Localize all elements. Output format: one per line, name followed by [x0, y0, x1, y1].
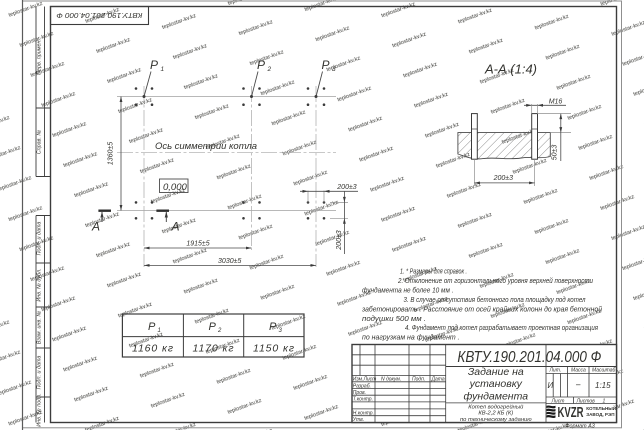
svg-text:Р: Р [269, 321, 277, 333]
svg-text:3. В случае отсутствия бетонн: 3. В случае отсутствия бетонного пола пл… [404, 296, 586, 304]
svg-text:Перв. примен.: Перв. примен. [37, 39, 43, 75]
svg-text:Подп. и дата: Подп. и дата [37, 356, 43, 390]
svg-text:КОТЕЛЬНЫЙ: КОТЕЛЬНЫЙ [586, 404, 616, 411]
svg-text:1360±5: 1360±5 [108, 142, 115, 165]
svg-text:М16: М16 [549, 98, 563, 105]
svg-text:1915±5: 1915±5 [186, 241, 209, 248]
svg-text:200±3: 200±3 [336, 184, 357, 191]
svg-text:Задание на: Задание на [468, 366, 524, 378]
svg-text:по техническому заданию: по техническому заданию [460, 417, 532, 423]
svg-text:Утв.: Утв. [353, 417, 364, 423]
svg-text:КВ-2,2 КБ (К): КВ-2,2 КБ (К) [478, 411, 513, 417]
svg-text:Р: Р [209, 321, 217, 333]
svg-text:1:15: 1:15 [595, 381, 611, 390]
svg-text:И: И [548, 381, 554, 390]
svg-text:1150 кг: 1150 кг [253, 343, 294, 355]
svg-text:ЗАВОД, РЭП: ЗАВОД, РЭП [586, 412, 614, 417]
svg-text:Р: Р [257, 58, 265, 72]
svg-text:Справ. №: Справ. № [37, 130, 43, 155]
svg-text:200±3: 200±3 [336, 230, 343, 251]
svg-text:А: А [170, 220, 179, 234]
svg-text:Формат А3: Формат А3 [565, 423, 595, 429]
svg-text:установку: установку [469, 378, 523, 390]
svg-text:Изм.Лист: Изм.Лист [353, 376, 377, 382]
svg-text:1160 кг: 1160 кг [132, 343, 173, 355]
svg-text:3030±5: 3030±5 [218, 258, 241, 265]
svg-text:1: 1 [158, 328, 161, 334]
svg-text:Котел водогрейный: Котел водогрейный [468, 403, 524, 410]
svg-text:2. Отклонение от горизонтальн: 2. Отклонение от горизонтального уровня … [397, 277, 593, 285]
svg-text:КВТУ.190.201.04.000 Ф: КВТУ.190.201.04.000 Ф [56, 11, 142, 20]
svg-text:Масса: Масса [571, 368, 586, 374]
svg-text:2: 2 [267, 66, 272, 73]
svg-text:Инв. № дубл.: Инв. № дубл. [37, 268, 43, 301]
svg-text:забетонировать . Расстояние от: забетонировать . Расстояние от осей край… [361, 305, 602, 313]
svg-text:Дата: Дата [431, 376, 445, 382]
svg-text:Разраб.: Разраб. [353, 383, 371, 389]
svg-text:4. Фундамент под котел разраб: 4. Фундамент под котел разрабатывает про… [405, 324, 598, 332]
svg-text:А-А (1:4): А-А (1:4) [484, 62, 537, 77]
svg-text:КВТУ.190.201.04.000 Ф: КВТУ.190.201.04.000 Ф [457, 349, 601, 366]
svg-text:Лист: Лист [551, 398, 565, 404]
svg-text:Р: Р [150, 58, 158, 72]
svg-text:Лит.: Лит. [549, 368, 562, 374]
svg-text:0,000: 0,000 [163, 182, 187, 193]
svg-text:А: А [91, 220, 100, 234]
svg-text:Масштаб: Масштаб [592, 368, 616, 374]
svg-text:1. * Размеры для справок .: 1. * Размеры для справок . [400, 268, 467, 276]
svg-text:фундамента не более 10 мм .: фундамента не более 10 мм . [362, 286, 454, 294]
svg-text:Н.контр.: Н.контр. [353, 410, 374, 416]
svg-text:фундамента: фундамента [464, 391, 529, 403]
svg-text:–: – [575, 380, 581, 389]
svg-text:Р: Р [322, 58, 330, 72]
svg-text:Пров.: Пров. [353, 390, 366, 396]
svg-text:KVZR: KVZR [558, 405, 584, 421]
svg-text:по нагрузкам на фундамент .: по нагрузкам на фундамент . [362, 334, 460, 342]
svg-text:200±3: 200±3 [493, 175, 514, 182]
svg-text:Р: Р [148, 321, 156, 333]
svg-text:50±3: 50±3 [551, 145, 558, 161]
svg-text:1: 1 [603, 398, 606, 404]
svg-text:1170 кг: 1170 кг [193, 343, 234, 355]
svg-text:N докум.: N докум. [381, 376, 401, 382]
svg-text:2: 2 [217, 328, 222, 334]
svg-text:Листов: Листов [576, 398, 596, 404]
svg-text:Т.контр.: Т.контр. [353, 397, 373, 403]
svg-text:1: 1 [161, 66, 165, 73]
svg-text:Подп.: Подп. [412, 376, 425, 382]
svg-text:Взам. инв. №: Взам. инв. № [37, 311, 43, 345]
svg-text:Ось симметрии котла: Ось симметрии котла [155, 141, 257, 152]
svg-text:3: 3 [332, 66, 336, 73]
svg-text:Инв. № подл.: Инв. № подл. [37, 393, 43, 426]
svg-text:Подп. и дата: Подп. и дата [37, 222, 43, 256]
svg-text:подушки 500 мм .: подушки 500 мм . [362, 315, 426, 323]
